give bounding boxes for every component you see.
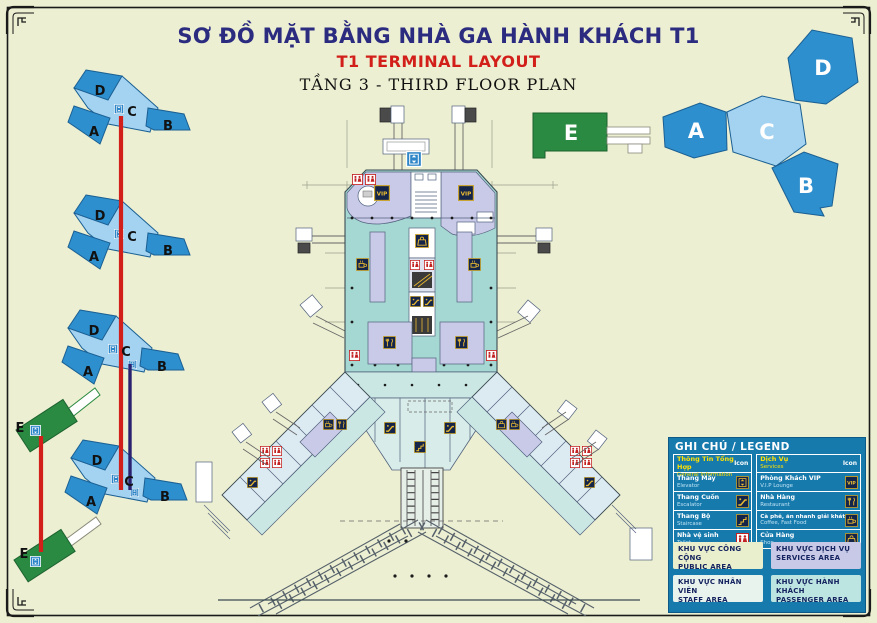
passenger-area-en: PASSENGER AREA	[776, 596, 856, 605]
left-wing	[196, 372, 385, 539]
legend-staircase-vi: Thang Bộ	[677, 513, 710, 520]
legend-icon-col-header: Icon	[843, 460, 857, 467]
passenger-area-swatch: KHU VỰC HÀNH KHÁCH PASSENGER AREA	[771, 575, 861, 602]
legend-coffee-en: Coffee, Fast Food	[760, 520, 845, 526]
floor1-label-a: A	[89, 125, 99, 140]
floor3-label-c: C	[121, 345, 131, 360]
vip-icon	[845, 476, 858, 489]
escalator-bank	[401, 468, 443, 528]
legend-row-elevator: Thang Máy Elevator	[674, 473, 751, 492]
floor4-label-a: A	[86, 495, 96, 510]
legend-shop-vi: Cửa Hàng	[760, 532, 794, 539]
legend-row-staircase: Thang Bộ Staircase	[674, 511, 751, 530]
floor1-label-d: D	[95, 84, 106, 99]
floor3-e-building	[16, 400, 77, 452]
central-floor-plan	[196, 106, 652, 616]
legend-row-restaurant: Nhà Hàng Restaurant	[757, 492, 860, 511]
jet-bridges-top	[380, 106, 476, 170]
legend-general-column: Thông Tin Tổng Hợp General Information I…	[673, 454, 752, 549]
legend-row-coffee: Cà phê, ăn nhanh giải khát Coffee, Fast …	[757, 511, 860, 530]
floor4-label-c: C	[124, 475, 134, 490]
floor3-label-e: E	[16, 421, 25, 436]
floor3-label-a: A	[83, 365, 93, 380]
v-trusses	[250, 520, 594, 616]
legend-general-title-vi: Thông Tin Tổng Hợp	[677, 456, 734, 472]
overview-label-a: A	[688, 119, 705, 143]
legend-vip-en: V.I.P Lounge	[760, 483, 820, 489]
terminal-layout-poster: VIP	[0, 0, 877, 623]
floor2-label-a: A	[89, 250, 99, 265]
legend-services-column: Dịch Vụ Services Icon Phòng Khách VIP V.…	[756, 454, 861, 549]
legend-area-swatches: KHU VỰC CÔNG CỘNG PUBLIC AREA KHU VỰC DỊ…	[673, 542, 863, 610]
legend-panel: GHI CHÚ / LEGEND Thông Tin Tổng Hợp Gene…	[668, 437, 866, 613]
legend-row-escalator: Thang Cuốn Escalator	[674, 492, 751, 511]
terminal-overview-icon: E A C D B	[533, 30, 858, 216]
staff-area-vi: KHU VỰC NHÂN VIÊN	[678, 578, 758, 596]
legend-escalator-en: Escalator	[677, 502, 719, 508]
floor-stack: D C A B D C A B D C A B E D C A B E	[14, 70, 190, 582]
floor1-label-c: C	[127, 105, 137, 120]
legend-title: GHI CHÚ / LEGEND	[669, 438, 865, 454]
legend-services-title-en: Services	[760, 464, 788, 471]
escalator-icon	[736, 495, 749, 508]
legend-elevator-en: Elevator	[677, 483, 716, 489]
overview-label-e: E	[564, 121, 578, 145]
services-area-swatch: KHU VỰC DỊCH VỤ SERVICES AREA	[771, 542, 861, 569]
legend-services-title-vi: Dịch Vụ	[760, 456, 788, 464]
legend-escalator-vi: Thang Cuốn	[677, 494, 719, 501]
overview-label-c: C	[759, 120, 774, 144]
legend-restaurant-vi: Nhà Hàng	[760, 494, 795, 501]
right-wing	[457, 372, 652, 560]
legend-toilet-vi: Nhà vệ sinh	[677, 532, 719, 539]
floor3-label-d: D	[89, 324, 100, 339]
overview-label-d: D	[814, 56, 831, 80]
legend-row-vip: Phòng Khách VIP V.I.P Lounge	[757, 473, 860, 492]
floor2-label-b: B	[163, 244, 173, 259]
apron-dots	[387, 539, 447, 577]
restaurant-icon	[845, 495, 858, 508]
services-area-en: SERVICES AREA	[776, 554, 856, 563]
passenger-area-vi: KHU VỰC HÀNH KHÁCH	[776, 578, 856, 596]
floor3-label-b: B	[157, 360, 167, 375]
staff-area-swatch: KHU VỰC NHÂN VIÊN STAFF AREA	[673, 575, 763, 602]
coffee-icon	[845, 514, 858, 527]
legend-icon-col-header: Icon	[734, 460, 748, 467]
staircase-icon	[736, 514, 749, 527]
public-area-vi: KHU VỰC CÔNG CỘNG	[678, 545, 758, 563]
services-area-vi: KHU VỰC DỊCH VỤ	[776, 545, 856, 554]
floor1-label-b: B	[163, 119, 173, 134]
corridor-band	[345, 372, 497, 398]
legend-restaurant-en: Restaurant	[760, 502, 795, 508]
floor4-label-e: E	[20, 547, 29, 562]
floor2-label-d: D	[95, 209, 106, 224]
legend-elevator-vi: Thang Máy	[677, 475, 716, 482]
floor2-label-c: C	[127, 230, 137, 245]
staff-area-en: STAFF AREA	[678, 596, 758, 605]
overview-label-b: B	[798, 174, 814, 198]
floor4-label-d: D	[92, 454, 103, 469]
floor4-label-b: B	[160, 490, 170, 505]
legend-vip-vi: Phòng Khách VIP	[760, 475, 820, 482]
public-area-en: PUBLIC AREA	[678, 563, 758, 572]
overview-corridor	[607, 127, 650, 153]
legend-staircase-en: Staircase	[677, 521, 710, 527]
public-area-swatch: KHU VỰC CÔNG CỘNG PUBLIC AREA	[673, 542, 763, 569]
elevator-icon	[736, 476, 749, 489]
